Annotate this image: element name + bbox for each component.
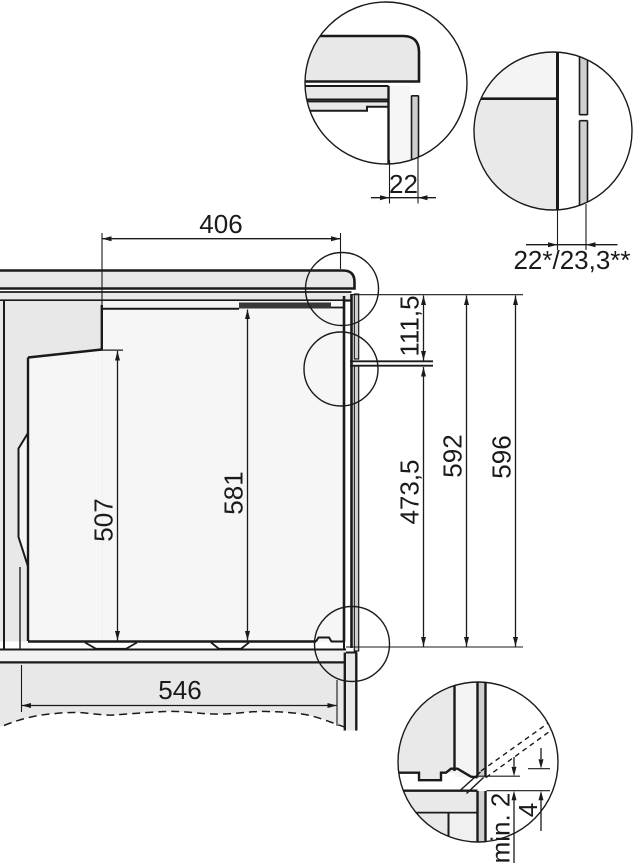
bottom-vent-notch [85, 643, 137, 649]
dim-label-592: 592 [438, 434, 468, 477]
dim-label-4: 4 [513, 803, 543, 817]
dim-label-596: 596 [487, 435, 517, 478]
dim-label-507: 507 [89, 498, 119, 541]
support-shelf [0, 651, 346, 662]
dim-label-406: 406 [199, 209, 242, 239]
dim-label-111-5: 111,5 [395, 295, 425, 356]
detail-view-bottom-rear: min. 2 4 [390, 675, 558, 863]
main-side-view [0, 253, 523, 731]
break-line [4, 711, 357, 730]
dim-label-22: 22 [389, 169, 418, 199]
rear-panel-strip-upper [354, 294, 358, 359]
bottom-vent-notch [211, 643, 249, 649]
oven-installation-diagram: 406 507 581 111,5 473,5 592 596 [0, 0, 636, 868]
dim-label-546: 546 [158, 675, 201, 705]
worktop-panel [0, 271, 355, 289]
oven-door [28, 350, 102, 642]
oven-top-bar [239, 303, 331, 309]
detail-view-top-corner: 22 [300, 2, 467, 204]
detail-view-rear-panel: 22*/23,3** [470, 48, 632, 275]
dim-label-473-5: 473,5 [395, 459, 425, 524]
dim-label-22-23-3: 22*/23,3** [513, 245, 630, 275]
dim-label-581: 581 [219, 471, 249, 514]
rear-lower-band [345, 654, 357, 731]
dim-label-min-2: min. 2 [486, 793, 516, 864]
rear-panel-strip-lower [354, 366, 358, 651]
top-trim-panel [0, 292, 352, 301]
installation-diagram-page: 406 507 581 111,5 473,5 592 596 [0, 0, 636, 868]
